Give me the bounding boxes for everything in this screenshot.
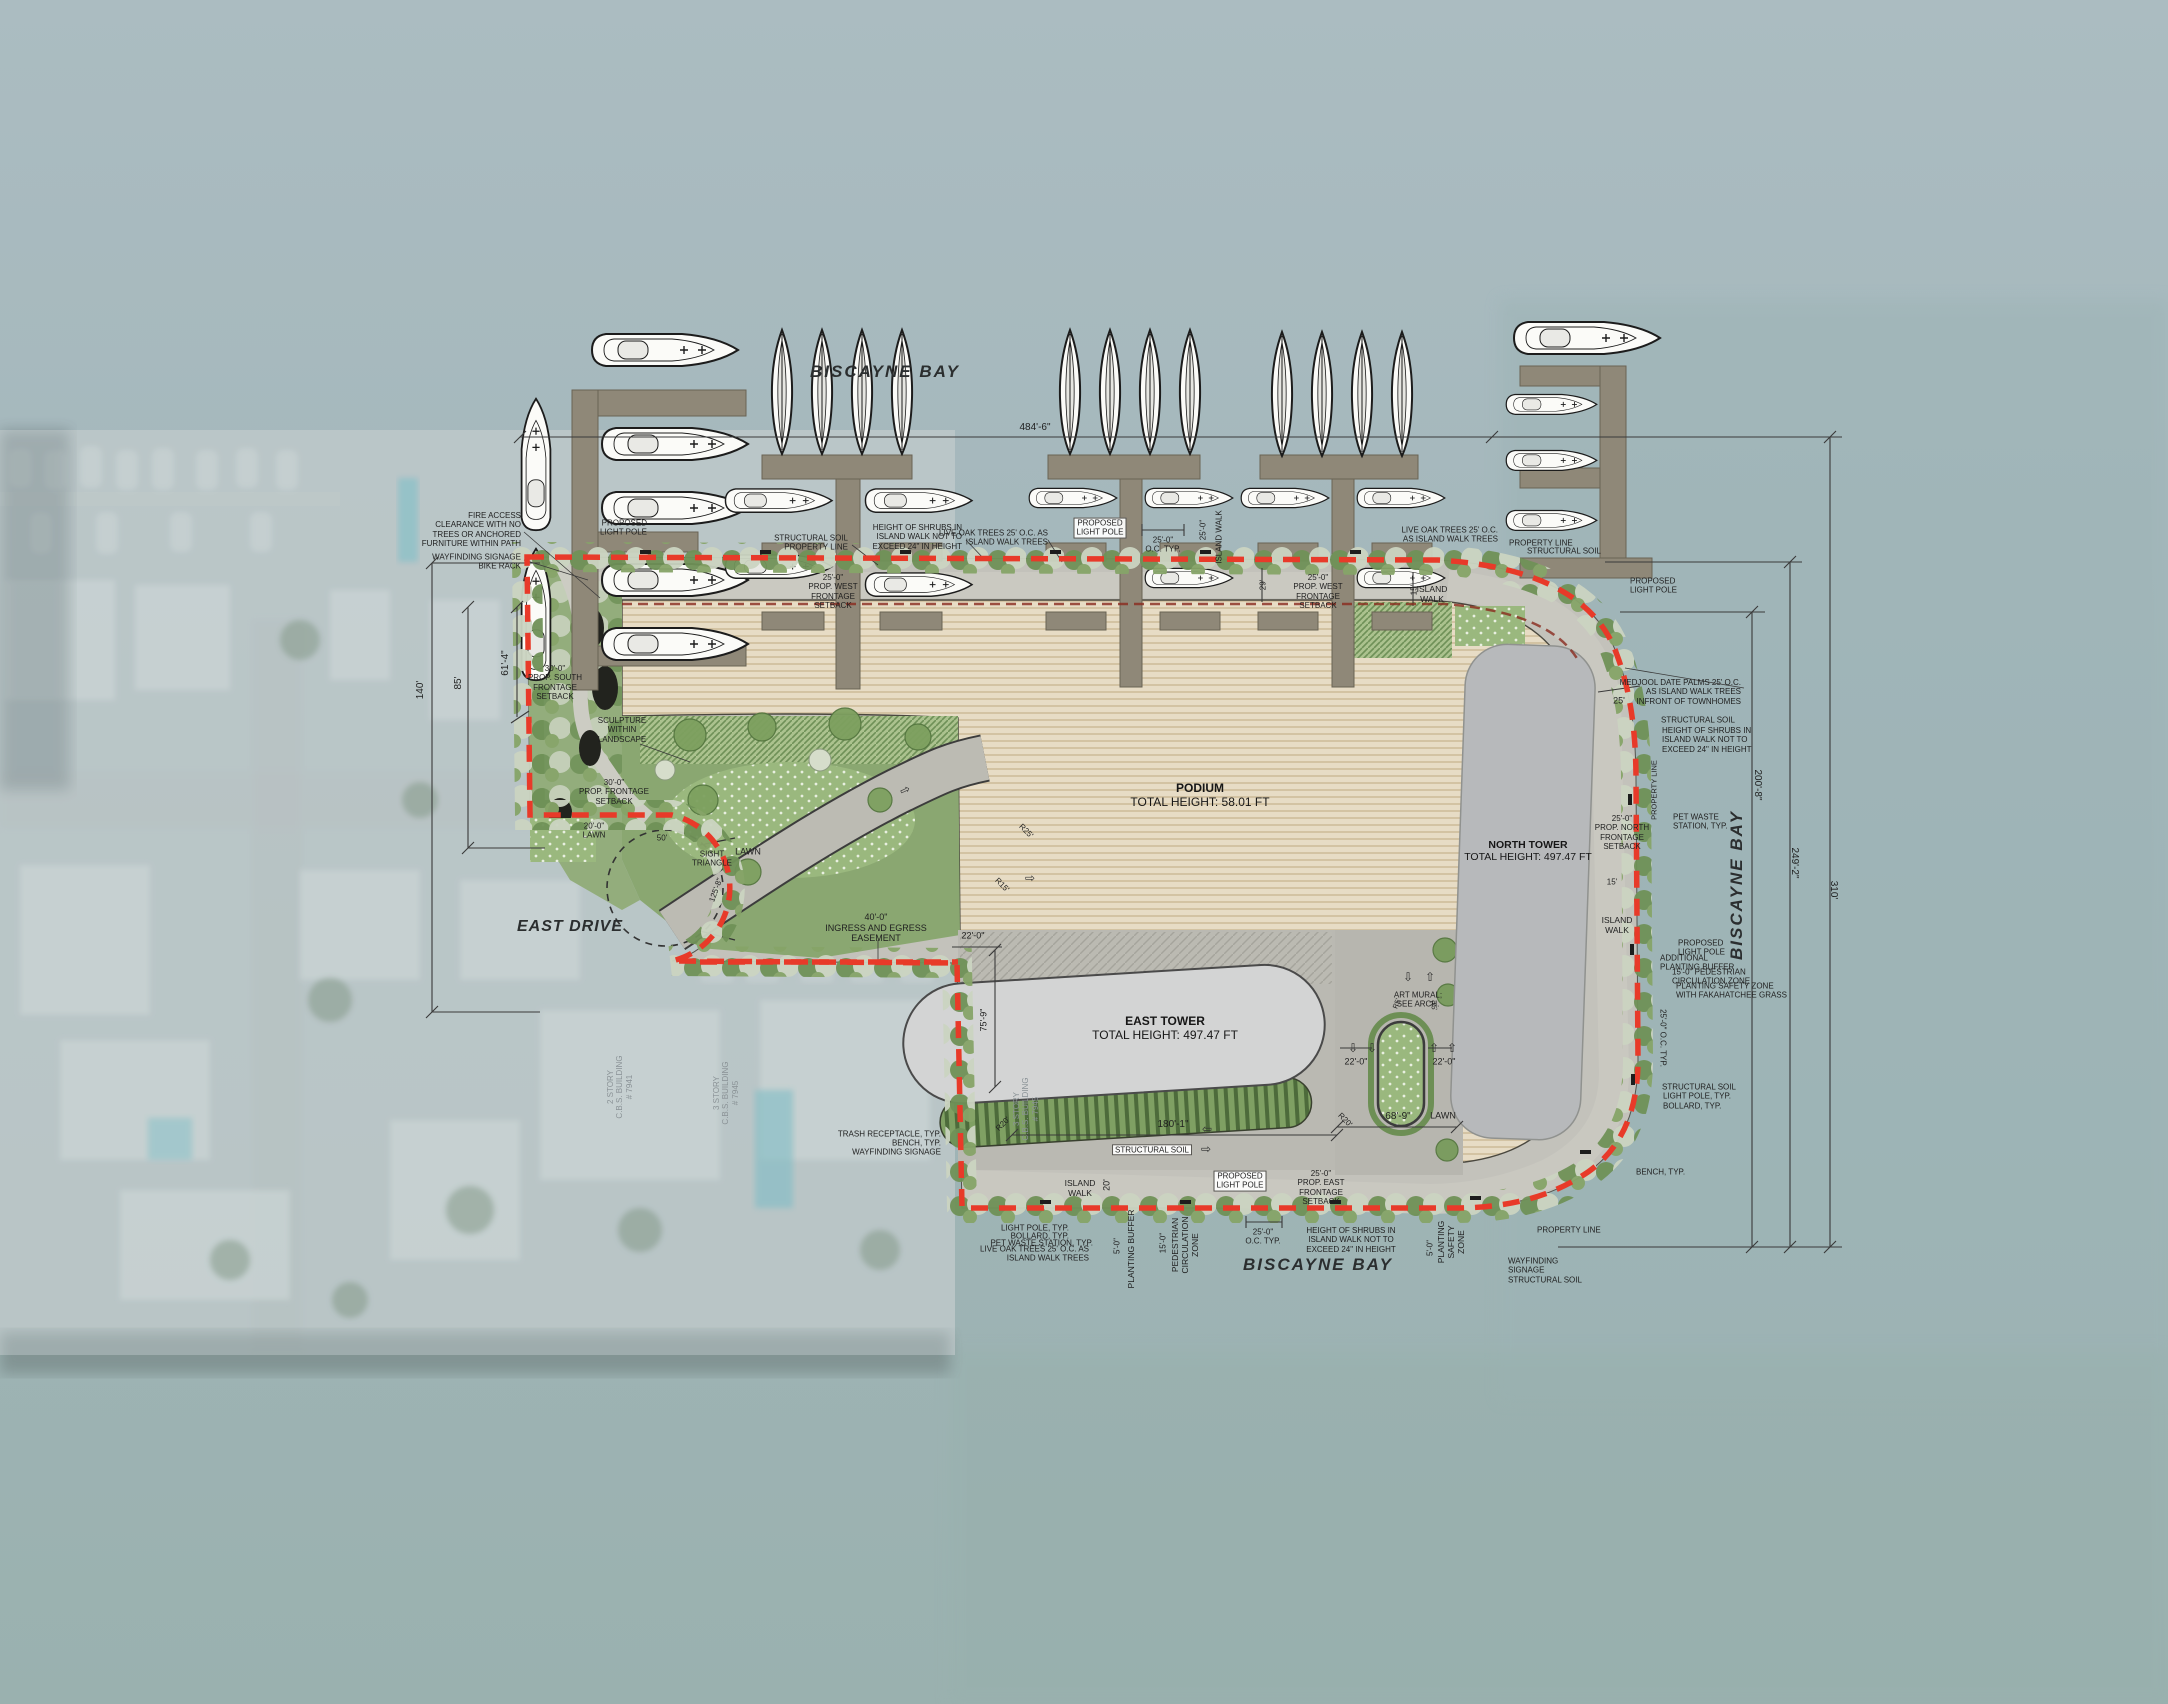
annotation-label: 25'-0" PROP. NORTH FRONTAGE SETBACK [1595,814,1649,852]
annotation-label: ISLAND WALK [1602,915,1633,935]
site-plan-canvas: { "plan_type": "architectural site plan"… [0,0,2168,1704]
annotation-label: 25'-0" PROP. WEST FRONTAGE SETBACK [808,573,857,611]
annotation-label: PROPERTY LINE [1537,1225,1601,1234]
annotation-label: SCULPTURE WITHIN LANDSCAPE [598,716,646,744]
dimension-label: 180'-1" [1157,1119,1188,1131]
dimension-label: 25'-0" O.C. TYP. [1245,1228,1280,1247]
annotation-label: ISLAND WALK [1417,584,1448,604]
dimension-label: 68'-9" [1385,1111,1410,1123]
annotation-label: PROPERTY LINE [1651,760,1660,820]
biscayne-bay-label-right: BISCAYNE BAY [1727,810,1747,960]
annotation-label: 25'-0" PROP. EAST FRONTAGE SETBACK [1298,1169,1345,1207]
pavement-arrow: ⇩ [1403,970,1413,984]
dimension-label: 200'-8" [1751,769,1763,800]
east-tower-label: EAST TOWER TOTAL HEIGHT: 497.47 FT [1092,1014,1238,1042]
annotation-label: 5'-0" [1425,1240,1434,1256]
pavement-arrow: ⇧ [1447,1041,1457,1055]
annotation-label: 15'-0" [1158,1233,1167,1253]
podium-name: PODIUM [1130,781,1269,795]
annotation-label: STRUCTURAL SOIL [1112,1144,1192,1155]
annotation-label: PET WASTE STATION, TYP. [1673,813,1728,832]
annotation-label: MEDJOOL DATE PALMS 25' O.C. AS ISLAND WA… [1620,678,1741,706]
annotation-label: 30'-0" PROP. SOUTH FRONTAGE SETBACK [528,664,582,702]
dimension-label: 85' [453,676,465,689]
dimension-label: 20' [1102,1179,1113,1191]
annotation-label: PROPOSED LIGHT POLE [1074,518,1127,539]
biscayne-bay-label-bottom: BISCAYNE BAY [1243,1255,1393,1275]
annotation-label: STRUCTURAL SOIL [1527,546,1601,555]
dimension-label: 15' [1607,877,1617,886]
annotation-label: WAYFINDING SIGNAGE BIKE RACK [432,553,521,572]
dimension-label: 484'-6" [1019,422,1050,434]
dimension-label: 140' [415,681,427,700]
north-tower-height: TOTAL HEIGHT: 497.47 FT [1464,851,1592,863]
north-tower-label: NORTH TOWER TOTAL HEIGHT: 497.47 FT [1464,839,1592,863]
east-tower-name: EAST TOWER [1092,1014,1238,1028]
annotation-label: 30'-0" PROP. FRONTAGE SETBACK [579,778,649,806]
annotation-label: LIVE OAK TREES 25' O.C. AS ISLAND WALK T… [1401,526,1498,545]
biscayne-bay-label-top: BISCAYNE BAY [810,362,960,382]
annotation-label: WAYFINDING SIGNAGE [852,1147,941,1156]
dimension-label: 310' [1827,881,1839,900]
annotation-label: 5'-0" [1112,1238,1121,1254]
dimension-label: 75'-9" [979,1009,990,1032]
dimension-label: 61'-4" [500,650,512,675]
dimension-label: 22'-0" [962,931,985,942]
dimension-label: 22'-0" [1345,1057,1368,1068]
annotation-label: 20'-0" LAWN [583,822,606,841]
pavement-arrow: ⇧ [1429,1041,1439,1055]
annotation-label: 40'-0" INGRESS AND EGRESS EASEMENT [825,912,927,944]
east-tower-height: TOTAL HEIGHT: 497.47 FT [1092,1028,1238,1042]
dimension-label: 50' [657,833,667,842]
annotation-label: PLANTING SAFETY ZONE WITH FAKAHATCHEE GR… [1676,982,1787,1001]
annotation-label: STRUCTURAL SOIL [1508,1275,1582,1284]
aerial-building-label: 3 STORY C.B.S. BUILDING # 7945 [1012,1077,1040,1140]
north-tower-footprint [1449,643,1596,1141]
annotation-label: 25'-0" [1198,520,1207,540]
east-drive-label: EAST DRIVE [517,918,623,936]
dimension-label: 249'-2" [1788,847,1800,878]
pavement-arrow: ⇧ [1425,970,1435,984]
annotation-label: STRUCTURAL SOIL PROPERTY LINE [774,534,848,553]
pavement-arrow: ⇨ [1025,871,1035,885]
north-tower-name: NORTH TOWER [1464,839,1592,851]
dimension-label: 22'-0" [1433,1057,1456,1068]
podium-height: TOTAL HEIGHT: 58.01 FT [1130,795,1269,809]
annotation-label: HEIGHT OF SHRUBS IN ISLAND WALK NOT TO E… [1306,1226,1396,1254]
pavement-arrow: ⇩ [1367,1041,1377,1055]
annotation-label: LAWN [735,847,761,858]
annotation-label: BOLLARD, TYP. [1663,1101,1721,1110]
annotation-label: SIGHT TRIANGLE [692,850,732,869]
podium-label: PODIUM TOTAL HEIGHT: 58.01 FT [1130,781,1269,809]
annotation-label: PROPOSED LIGHT POLE [1630,577,1677,596]
annotation-label: LIGHT POLE, TYP. [1663,1091,1731,1100]
annotation-label: PLANTING SAFETY ZONE [1436,1221,1466,1264]
annotation-label: BENCH, TYP. [1636,1167,1685,1176]
dimension-label: 29' [1258,580,1267,590]
annotation-label: PEDESTRIAN CIRCULATION ZONE [1170,1217,1200,1274]
annotation-label: FIRE ACCESS CLEARANCE WITH NO TREES OR A… [422,511,521,549]
annotation-label: PROPOSED LIGHT POLE [1214,1171,1267,1192]
annotation-label: LAWN [1430,1111,1456,1122]
annotation-label: WAYFINDING SIGNAGE [1508,1257,1558,1276]
annotation-label: PROPOSED LIGHT POLE [600,519,647,538]
pavement-arrow: ⇩ [1348,1041,1358,1055]
site-plan-drawing [0,0,2168,1704]
dimension-label: 25'-0" O.C. TYP. [1145,536,1180,555]
annotation-label: PLANTING BUFFER [1126,1210,1136,1289]
annotation-label: LIVE OAK TREES 25' O.C. AS ISLAND WALK T… [939,529,1048,548]
annotation-label: HEIGHT OF SHRUBS IN ISLAND WALK NOT TO E… [1662,726,1752,754]
annotation-label: ISLAND WALK [1214,510,1223,564]
annotation-label: STRUCTURAL SOIL [1661,715,1735,724]
aerial-building-label: 3 STORY C.B.S. BUILDING # 7945 [712,1061,740,1124]
pavement-arrow: ⇨ [1201,1142,1211,1156]
annotation-label: ISLAND WALK [1065,1178,1096,1198]
dimension-label: 25'-0" O.C. TYP. [1658,1009,1667,1067]
aerial-building-label: 2 STORY C.B.S. BUILDING # 7941 [606,1055,634,1118]
pavement-arrow: ⇦ [1202,1122,1212,1136]
annotation-label: LIVE OAK TREES 25' O.C. AS ISLAND WALK T… [980,1245,1089,1264]
annotation-label: 25'-0" PROP. WEST FRONTAGE SETBACK [1293,573,1342,611]
